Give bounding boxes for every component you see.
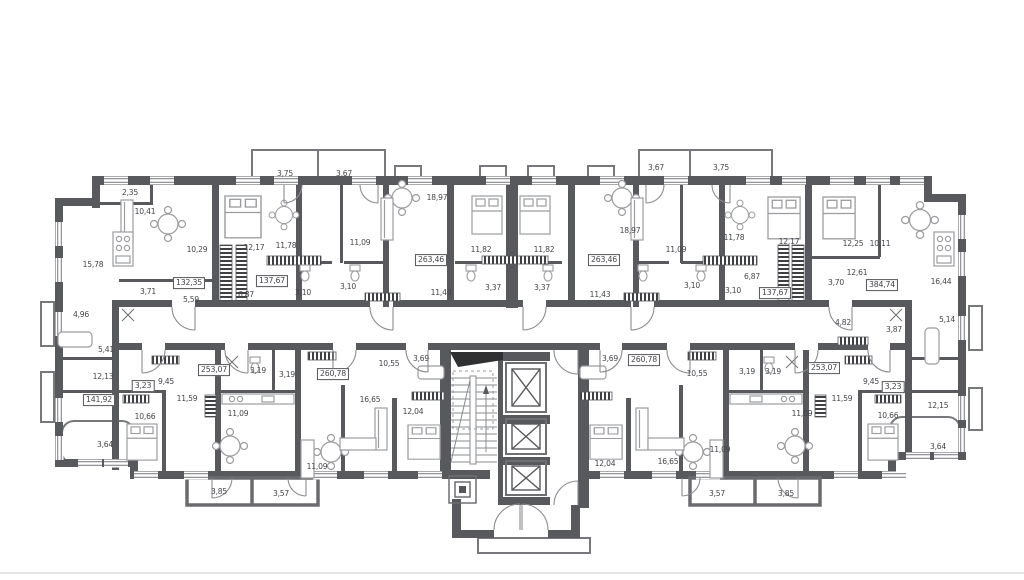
floorplan-drawing [0,0,1024,580]
garbage-chute [449,476,476,503]
staircase [451,371,497,464]
section-mark [450,352,503,367]
stair-core [440,350,589,538]
elevator-shafts [506,363,546,495]
floor-plan-page: 3,753,673,673,752,3510,4115,7810,2912,17… [0,0,1024,580]
